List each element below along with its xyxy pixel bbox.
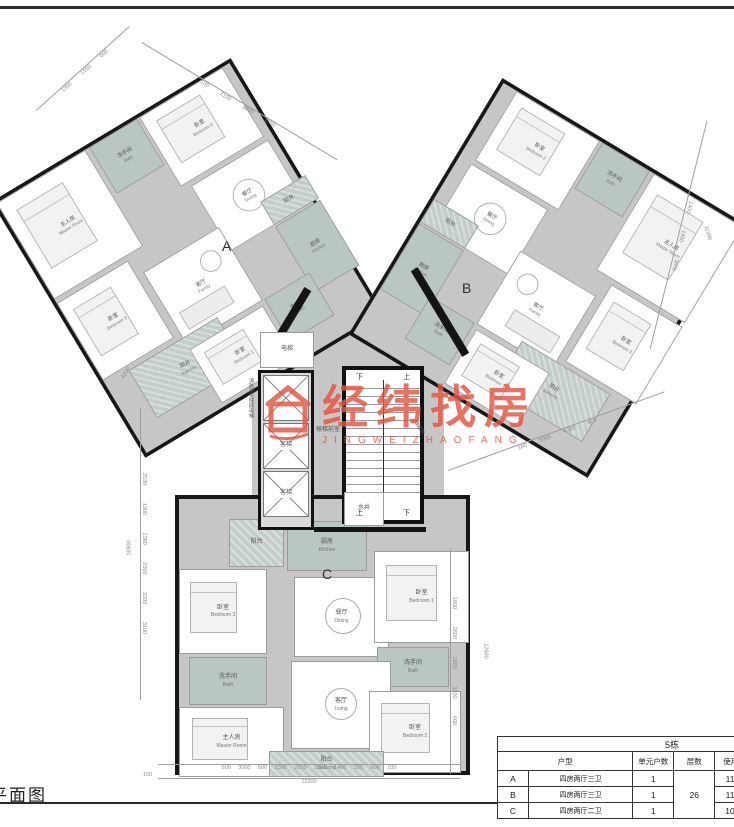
cell-count: 1 — [633, 803, 674, 819]
room-c-bed3: 卧室Bedroom 3 — [179, 569, 267, 654]
cell-count: 1 — [633, 771, 674, 787]
col-header-usable: 使用面积 — [715, 752, 734, 771]
stair-down-label: 下 — [356, 372, 363, 382]
elevator-shaft-column: 客梯 客梯 — [258, 370, 314, 530]
dim-chain-left: 2530 1300 1360 2500 2500 3100 — [140, 408, 147, 700]
lobby-label: 候梯前室 — [316, 424, 340, 433]
cell-usable: 105.93 — [715, 803, 734, 819]
cell-unit: A — [498, 771, 529, 787]
sheet-top-border — [0, 6, 734, 9]
cell-type: 四房两厅三卫 — [529, 771, 633, 787]
cell-count: 1 — [633, 787, 674, 803]
stair-up-label: 上 — [403, 372, 410, 382]
elevator-room: 电梯 — [260, 332, 314, 368]
tea-table-icon — [196, 246, 226, 276]
unit-c-wing: 阳台 厨房Kitchen 卧室Bedroom 3 餐厅Dining 卧室Bedr… — [175, 495, 470, 775]
unit-b-letter: B — [462, 280, 471, 296]
col-header-count: 单元户数 — [633, 752, 674, 771]
unit-c-letter: C — [322, 566, 332, 582]
dim-chain-right-c: 1800 2600 1800 3100 600 — [450, 548, 457, 774]
passenger-elevator-shaft: 客梯 — [263, 423, 309, 469]
dim-chain-bottom: 600 3000 500 2300 2200 1500 1400 200 600… — [158, 764, 460, 771]
cell-floors: 26 — [674, 771, 715, 819]
cell-unit: C — [498, 803, 529, 819]
col-header-type: 户型 — [498, 752, 633, 771]
stair-down-label: 下 — [403, 508, 410, 518]
dim-total-left: 16900 — [127, 540, 133, 555]
stair-divider — [383, 380, 384, 508]
dim-chain-top-left: 1350 1550 600 — [36, 26, 134, 115]
water-shaft: 水井 — [344, 492, 384, 526]
table-row: A 四房两厅三卫 1 26 118.82 9.96 113 — [498, 771, 734, 787]
cell-usable: 118.82 — [715, 771, 734, 787]
unit-a-letter: A — [222, 238, 231, 254]
fire-elevator-shaft — [263, 375, 309, 421]
dim-total-right-c: 12600 — [483, 643, 489, 658]
dim-bottom-left-tick: 100 — [143, 772, 152, 778]
cell-type: 四房两厅二卫 — [529, 803, 633, 819]
cell-usable: 118.82 — [715, 787, 734, 803]
fire-elevator-label: 消防兼无障碍电梯 — [248, 378, 255, 418]
core-wall — [314, 527, 426, 532]
table-building-title: 5栋 — [498, 737, 734, 752]
cell-unit: B — [498, 787, 529, 803]
unit-spec-table: 5栋 户型 单元户数 层数 使用面积 阳台面积 套内面积 A 四房两厅三卫 1 … — [497, 736, 734, 819]
dim-total-bottom: 12200 — [158, 778, 460, 785]
passenger-elevator-shaft: 客梯 — [263, 471, 309, 517]
cell-type: 四房两厅三卫 — [529, 787, 633, 803]
plan-title: 平面图 — [0, 781, 47, 806]
room-c-bath1: 洗手间Bath — [189, 657, 267, 705]
tea-table-icon — [513, 270, 543, 300]
stair-up-label: 上 — [356, 508, 363, 518]
col-header-floors: 层数 — [674, 752, 715, 771]
floor-plan-sheet: 主人房Master Room 洗手间Bath 卧室Bedroom 2 卧室Bed… — [0, 0, 734, 827]
